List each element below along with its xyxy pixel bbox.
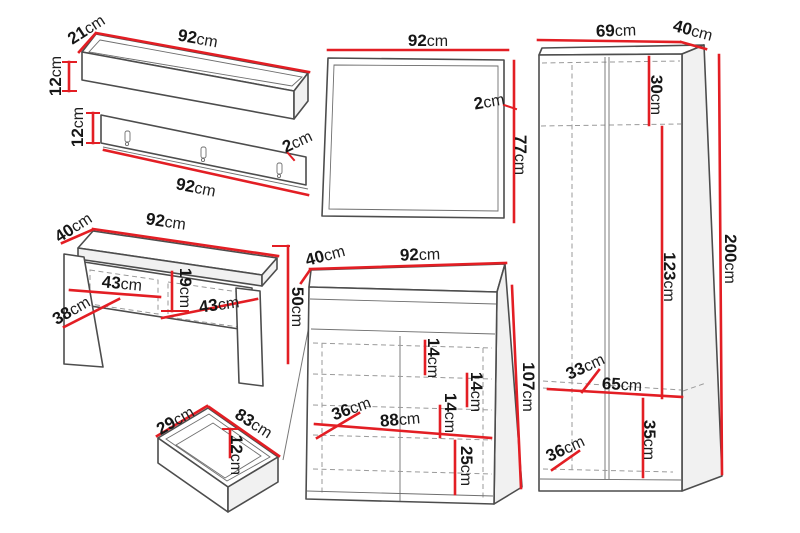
furniture-dimension-diagram: 21cm 92cm 12cm 12cm 92cm 2cm [0, 0, 800, 533]
dim-cabinet-gap1-label: 14cm [424, 338, 443, 378]
dim-cabinet-inner-width-label: 88cm [379, 408, 421, 430]
dim-cabinet-depth-label: 40cm [303, 241, 347, 270]
dim-wardrobe-depth-label: 40cm [671, 16, 715, 45]
dim-panel-height-label: 12cm [68, 107, 87, 147]
coat-rack-panel: 12cm 92cm 2cm [68, 107, 315, 201]
bench: 40cm 92cm 43cm 38cm 19cm 43cm 50cm [49, 208, 307, 386]
dim-drawer-height-label: 12cm [227, 435, 246, 475]
mirror: 92cm 2cm 77cm [322, 31, 530, 222]
dim-bench-drawer-height-label: 19cm [176, 268, 195, 308]
dim-wardrobe-width-label: 69cm [596, 20, 637, 40]
dim-shelf-height-label: 12cm [46, 56, 65, 96]
dim-bench-width-label: 92cm [145, 209, 188, 233]
dim-panel-thickness-label: 2cm [279, 126, 315, 156]
dim-cabinet-bottom-label: 25cm [457, 446, 476, 486]
dim-wardrobe-inner-width-label: 65cm [601, 374, 642, 395]
cabinet-side-face [494, 264, 522, 504]
dim-cabinet-gap3-label: 14cm [441, 393, 460, 433]
dim-mirror-width-label: 92cm [408, 31, 448, 50]
wardrobe: 69cm 40cm 30cm 123cm 200cm 33cm 65cm 35c… [538, 16, 740, 491]
dim-line-wardrobe-width [538, 40, 680, 42]
wall-shelf: 21cm 92cm 12cm [46, 10, 309, 119]
dim-bench-height-label: 50cm [288, 287, 307, 327]
wardrobe-side-face [682, 45, 722, 491]
dim-mirror-height-label: 77cm [511, 135, 530, 175]
dim-cabinet-height-label: 107cm [519, 362, 538, 412]
dim-cabinet-width-label: 92cm [400, 244, 441, 264]
dim-panel-width-label: 92cm [174, 174, 217, 200]
dim-shelf-width-label: 92cm [176, 26, 219, 52]
dim-wardrobe-bottom-section-label: 35cm [640, 420, 659, 460]
coat-panel-face [101, 115, 306, 185]
dim-line-cabinet-depth [301, 270, 310, 283]
dim-wardrobe-top-section-label: 30cm [647, 75, 666, 115]
shoe-cabinet: 40cm 92cm 14cm 14cm 14cm 36cm 88cm 25cm … [301, 241, 538, 504]
mirror-frame-outer [322, 58, 504, 218]
dim-cabinet-gap2-label: 14cm [467, 372, 486, 412]
diagram-canvas: 21cm 92cm 12cm 12cm 92cm 2cm [0, 0, 800, 533]
dim-wardrobe-height-label: 200cm [721, 234, 740, 284]
dim-wardrobe-middle-section-label: 123cm [660, 252, 679, 302]
